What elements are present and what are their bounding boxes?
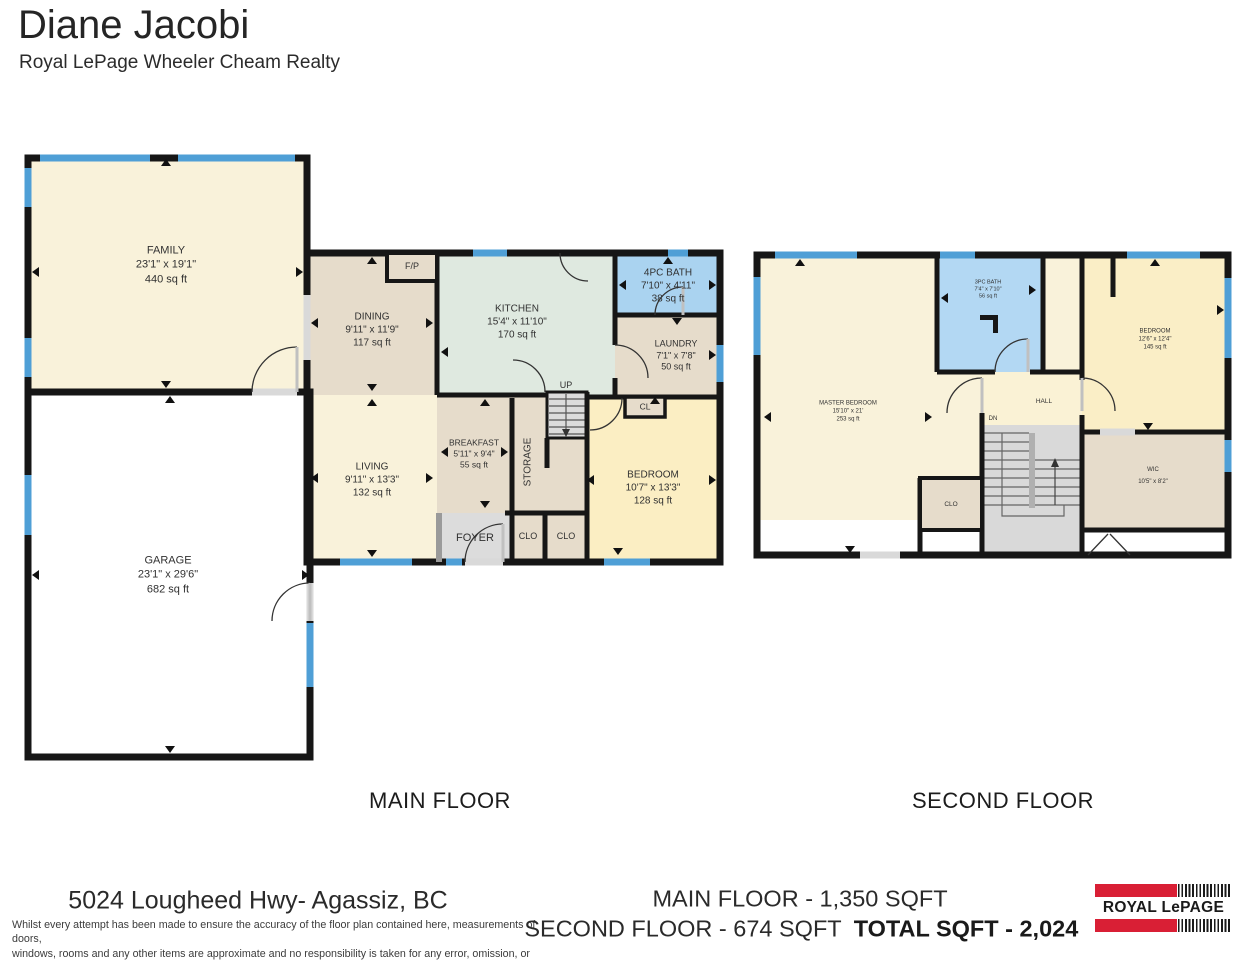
room-area: 682 sq ft	[138, 582, 198, 596]
foyer-wall-stub	[436, 513, 442, 562]
room-name: F/P	[405, 261, 419, 273]
room-name: LAUNDRY	[655, 338, 698, 350]
room-name: DN	[989, 416, 998, 424]
disclaimer-text: Whilst every attempt has been made to en…	[12, 918, 542, 960]
label-4pc-bath: 4PC BATH 7'10" x 4'11" 38 sq ft	[641, 267, 695, 306]
label-dn: DN	[989, 416, 998, 424]
room-area: 128 sq ft	[626, 495, 681, 508]
room-name: DINING	[345, 311, 398, 324]
room-area: 170 sq ft	[487, 329, 547, 342]
logo-bar-top	[1095, 884, 1232, 897]
logo-brand-text: ROYAL LePAGE	[1095, 899, 1232, 917]
label-bedroom2: BEDROOM 12'6" x 12'4" 145 sq ft	[1139, 328, 1172, 351]
room-dims: 15'4" x 11'10"	[487, 316, 547, 329]
label-3pc-bath: 3PC BATH 7'4" x 7'10" 56 sq ft	[974, 279, 1001, 300]
room-dims: 9'11" x 11'9"	[345, 324, 398, 337]
label-master-bedroom: MASTER BEDROOM 15'10" x 21' 253 sq ft	[819, 400, 877, 423]
room-name: STORAGE	[522, 438, 535, 487]
room-area: 117 sq ft	[345, 337, 398, 350]
label-laundry: LAUNDRY 7'1" x 7'8" 50 sq ft	[655, 338, 698, 373]
room-name: BEDROOM	[1139, 328, 1172, 336]
room-area: 440 sq ft	[136, 272, 196, 286]
room-name: FAMILY	[136, 244, 196, 258]
room-name: BEDROOM	[626, 469, 681, 482]
total-sqft: TOTAL SQFT - 2,024	[854, 916, 1079, 943]
room-name: FOYER	[456, 531, 494, 545]
main-floor-title: MAIN FLOOR	[369, 788, 511, 814]
label-storage: STORAGE	[522, 438, 535, 487]
second-floor-title: SECOND FLOOR	[912, 788, 1094, 814]
label-bedroom: BEDROOM 10'7" x 13'3" 128 sq ft	[626, 469, 681, 508]
disclaimer-line: windows, rooms and any other items are a…	[12, 947, 542, 960]
label-clo-2f: CLO	[944, 501, 957, 509]
room-name: MASTER BEDROOM	[819, 400, 877, 408]
label-kitchen: KITCHEN 15'4" x 11'10" 170 sq ft	[487, 303, 547, 342]
label-hall: HALL	[1036, 398, 1052, 406]
room-dims: 7'1" x 7'8"	[655, 350, 698, 362]
label-dining: DINING 9'11" x 11'9" 117 sq ft	[345, 311, 398, 350]
room-name: BREAKFAST	[449, 437, 499, 448]
room-name: 3PC BATH	[974, 279, 1001, 286]
room-name: GARAGE	[138, 554, 198, 568]
label-wic: WIC 10'5" x 8'2"	[1138, 467, 1168, 487]
label-fireplace: F/P	[405, 261, 419, 273]
room-name: CLO	[519, 531, 538, 543]
room-area: 56 sq ft	[974, 294, 1001, 301]
room-area: 253 sq ft	[819, 416, 877, 424]
label-living: LIVING 9'11" x 13'3" 132 sq ft	[345, 461, 399, 500]
main-floor-room-fills	[28, 158, 720, 757]
main-floor-sqft: MAIN FLOOR - 1,350 SQFT	[652, 886, 947, 913]
label-garage: GARAGE 23'1" x 29'6" 682 sq ft	[138, 554, 198, 597]
second-floor-sqft: SECOND FLOOR - 674 SQFT	[524, 916, 841, 943]
room-area: 55 sq ft	[449, 460, 499, 471]
room-name: KITCHEN	[487, 303, 547, 316]
property-address: 5024 Lougheed Hwy- Agassiz, BC	[68, 887, 447, 916]
label-family: FAMILY 23'1" x 19'1" 440 sq ft	[136, 244, 196, 287]
room-dims: 9'11" x 13'3"	[345, 474, 399, 487]
room-area: 132 sq ft	[345, 487, 399, 500]
room-dims: 15'10" x 21'	[819, 408, 877, 416]
room-dims: 7'10" x 4'11"	[641, 280, 695, 293]
room-alcove	[1043, 255, 1082, 372]
label-clo-2: CLO	[557, 531, 576, 543]
room-area: 50 sq ft	[655, 362, 698, 374]
room-dims: 23'1" x 29'6"	[138, 568, 198, 582]
room-name: CLO	[944, 501, 957, 509]
room-dims: 5'11" x 9'4"	[449, 448, 499, 459]
floorplan-flyer: Diane Jacobi Royal LePage Wheeler Cheam …	[0, 0, 1242, 960]
room-dims: 12'6" x 12'4"	[1139, 336, 1172, 344]
room-area: 38 sq ft	[641, 293, 695, 306]
room-name: 4PC BATH	[641, 267, 695, 280]
label-breakfast: BREAKFAST 5'11" x 9'4" 55 sq ft	[449, 437, 499, 470]
label-cl: CL	[640, 401, 651, 412]
room-dims: 23'1" x 19'1"	[136, 258, 196, 272]
room-name: HALL	[1036, 398, 1052, 406]
room-name: WIC	[1138, 467, 1168, 475]
royal-lepage-logo: ROYAL LePAGE	[1095, 884, 1232, 932]
room-dims: 10'7" x 13'3"	[626, 482, 681, 495]
label-foyer: FOYER	[456, 531, 494, 545]
room-area: 145 sq ft	[1139, 344, 1172, 352]
disclaimer-line: Whilst every attempt has been made to en…	[12, 918, 542, 947]
room-dims: 10'5" x 8'2"	[1138, 479, 1168, 487]
room-name: CL	[640, 401, 651, 412]
label-clo-1: CLO	[519, 531, 538, 543]
room-dims: 7'4" x 7'10"	[974, 286, 1001, 293]
floorplan-graphics	[0, 0, 1242, 960]
room-name: UP	[560, 380, 573, 392]
main-stairs	[547, 392, 587, 438]
room-name: LIVING	[345, 461, 399, 474]
label-up: UP	[560, 380, 573, 392]
logo-bar-bottom	[1095, 919, 1232, 932]
room-name: CLO	[557, 531, 576, 543]
